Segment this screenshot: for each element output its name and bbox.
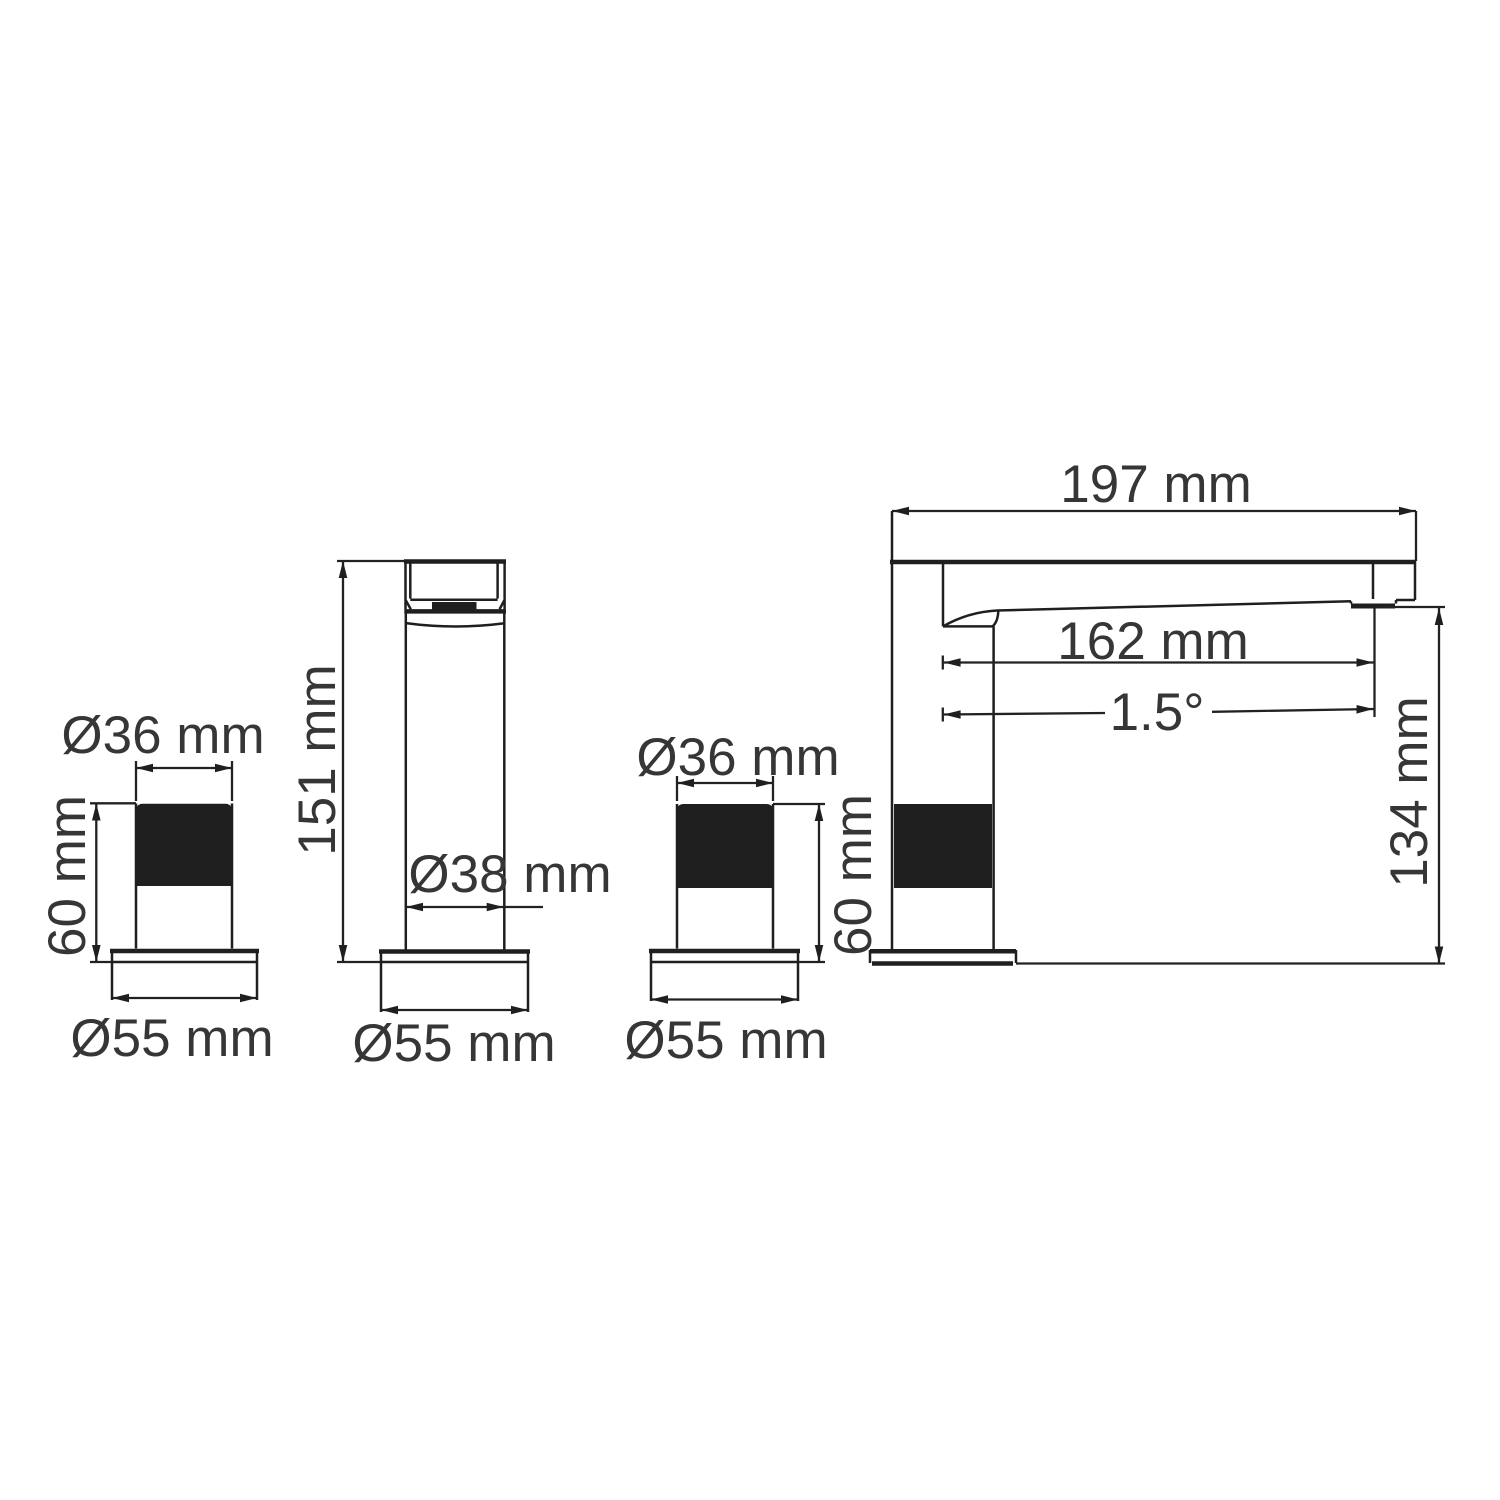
svg-text:1.5°: 1.5° xyxy=(1110,683,1205,742)
svg-text:Ø36 mm: Ø36 mm xyxy=(61,706,264,765)
svg-text:Ø38 mm: Ø38 mm xyxy=(408,845,611,904)
svg-text:Ø55 mm: Ø55 mm xyxy=(352,1014,555,1073)
svg-text:60 mm: 60 mm xyxy=(38,795,97,957)
svg-text:Ø55 mm: Ø55 mm xyxy=(624,1011,827,1070)
svg-text:197 mm: 197 mm xyxy=(1060,455,1251,514)
svg-text:151 mm: 151 mm xyxy=(288,664,347,855)
svg-text:Ø36 mm: Ø36 mm xyxy=(636,728,839,787)
svg-text:134 mm: 134 mm xyxy=(1380,696,1439,887)
svg-text:Ø55 mm: Ø55 mm xyxy=(70,1009,273,1068)
svg-text:60 mm: 60 mm xyxy=(824,794,883,956)
